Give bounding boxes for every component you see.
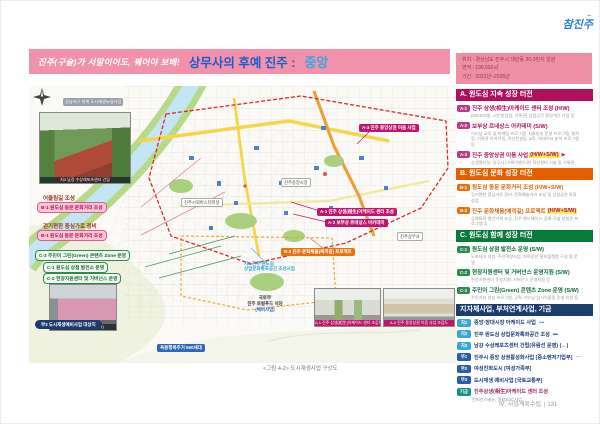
item-bu2-text: 여성친화도시 [여성가족부] — [474, 365, 531, 372]
leports-center-photo-caption: 지3 남강 수상레포츠센터 건립 — [40, 177, 130, 183]
item-ji2-text: 진주 원도심 상업문화특화공간 조성 — [474, 331, 550, 338]
item-c2-desc: 현장지원센터 운영지원, 거버넌스 운영지원 등 — [471, 277, 579, 283]
item-c3-desc: 주민기자 양성 프로그램, 공톡·가드닝·업사이클링 운영 지원 등 — [471, 295, 579, 301]
note-eoullim-path: 어울림길 조성 — [43, 194, 75, 202]
section-b-header: B. 원도심 문화 성장 터전 — [456, 168, 593, 180]
info-location: 위치 : 경상남도 진주시 대안동 30-3번지 일원 — [462, 56, 586, 64]
section-a-header: A. 원도심 지속 성장 터전 — [456, 89, 593, 101]
project-list-panel: A. 원도심 지속 성장 터전 A-1 진주 상생(相生)아케이드 센터 조성 … — [456, 89, 593, 406]
b2-map-badge: B-2 진주 문화채움(예끼길) 프로젝트 — [281, 248, 355, 256]
item-fund-text: 진주상생(相生)아케이드 센터 조성 — [474, 388, 548, 395]
info-period: 기간 : 2022년~2026년 — [462, 73, 586, 81]
gangnam-district-badge: 강남지구 연계 도시재생뉴딜사업 — [63, 98, 123, 106]
item-a2-desc: 이러닝 교육 및 마케팅 프로그램, 자율방송 운영 프로그램, 컬처링, 기록… — [471, 131, 579, 148]
item-ji2-badge: 지2 — [457, 330, 471, 338]
item-a1-badge: A-1 — [457, 105, 470, 112]
compass-rose-icon — [33, 88, 51, 106]
item-c1-desc: 노포테크 지원, 주민역량사업, 지역상인 홍보플랫폼 구성 및 운영 — [471, 254, 579, 265]
bu3-target-site-pill: 부3 도시재생예비사업 대상지 — [35, 320, 102, 329]
item-b1-desc: 걷기편한 중심가로 정비, 문화예술거리 조성 및 상설공연 특화상점 — [471, 192, 579, 203]
item-a2: A-2 보부상 르네상스 아카데미 (S/W) 이러닝 교육 및 마케팅 프로그… — [457, 122, 593, 148]
item-c2-title: 현장지원센터 및 거버넌스 운영지원 (S/W) — [472, 268, 570, 276]
item-ji3-badge: 지3 — [457, 342, 471, 350]
item-b1-title: 원도심 동문 문화거리 조성 (H/W+S/W) — [472, 183, 563, 191]
sangmusa-rendering: A-3 진주 중앙상권 이음 사업 조감도 — [383, 288, 455, 327]
item-a2-badge: A-2 — [457, 122, 470, 129]
item-a3: A-3 진주 중앙상권 이음 사업 (H/W+S/W) ▶ 상생멀티실, 상무사… — [457, 151, 593, 166]
item-a2-title: 보부상 르네상스 아카데미 (S/W) — [472, 122, 548, 130]
item-a1: A-1 진주 상생(相生)아케이드 센터 조성 (H/W) (MICE지원, 시… — [457, 104, 593, 119]
item-c1-title: 원도심 상점 발전소 운영 (S/W) — [472, 245, 544, 253]
item-ji1-badge: 지1 — [457, 319, 471, 327]
item-a3-desc: 상생멀티실, 상무사 (기록이벤트관) 혁신센터 시설 및 기록관 — [471, 160, 579, 166]
item-ji3: 지3 남강 수상레포츠센터 건립(유람선 운영) (←) — [457, 342, 593, 350]
sangmusa-rendering-caption: A-3 진주 중앙상권 이음 사업 조감도 — [384, 320, 454, 326]
item-ji2: 지2 진주 원도심 상업문화특화공간 조성 ▬ — [457, 330, 593, 338]
b1-callout-badge-1: B-1 원도심 동문 문화거리 조성 — [37, 202, 107, 213]
section-d-header: 지자체사업, 부처연계사업, 기금 — [456, 304, 593, 316]
item-bu1-badge: 부1 — [457, 353, 471, 361]
item-bu3-text: 도시재생 예비사업 [국토교통부] — [474, 377, 542, 384]
a3-map-badge: A-3 진주 중앙상권 이음 사업 — [359, 124, 419, 132]
item-c1: C-1 원도심 상점 발전소 운영 (S/W) 노포테크 지원, 주민역량사업,… — [457, 245, 593, 265]
item-bu3: 부3 도시재생 예비사업 [국토교통부] — [457, 376, 593, 384]
a1-map-badge: A-1 진주 상생(相生)아케이드 센터 조성 — [317, 208, 397, 216]
item-ji2-line-icon: ▬ — [553, 331, 558, 337]
leports-center-photo: 지3 남강 수상레포츠센터 건립 — [39, 112, 131, 184]
item-c3-title: 주민이 그린(Green) 콘텐츠 Zone 운영 (S/W) — [472, 286, 579, 294]
item-bu1: 부1 진주시 중앙 상권활성화사업 [중소벤처기업부] ╌╌ — [457, 353, 593, 361]
item-a3-arrow-icon: ▶ — [562, 152, 566, 158]
item-c3: C-3 주민이 그린(Green) 콘텐츠 Zone 운영 (S/W) 주민기자… — [457, 286, 593, 301]
item-b2-title: 진주 문화채움(예끼길) 프로젝트 — [472, 207, 546, 215]
page-title-highlight: 중앙 — [304, 52, 328, 71]
slogan-text: 진주(구슬)가 서말이어도, 꿰어야 보배! — [38, 56, 180, 68]
item-b2-badge: B-2 — [457, 207, 470, 214]
item-c2-badge: C-2 — [457, 269, 470, 276]
ji2-map-text: 지2 진주 원도심 상업문화특화공간 조성사업 — [244, 261, 295, 272]
item-a1-desc: (MICE지원, 시민창업샵, 기록관) 상업공간 환경개선 사업 등 — [471, 113, 579, 119]
localfood-line3: (예비사업) — [229, 307, 301, 313]
item-b1: B-1 원도심 동문 문화거리 조성 (H/W+S/W) 걷기편한 중심가로 정… — [457, 183, 593, 203]
section-c-header: C. 원도심 함께 성장 터전 — [456, 230, 593, 242]
item-bu2-badge: 부2 — [457, 365, 471, 373]
okbong-housing-badge: 옥봉행복주거 500세대 — [157, 344, 205, 352]
localfood-map-text: 국토부 진주 로컬푸드 식당 (예비사업) — [229, 295, 301, 313]
item-bu1-text: 진주시 중앙 상권활성화사업 [중소벤처기업부] — [474, 354, 572, 361]
title-band: 진주(구슬)가 서말이어도, 꿰어야 보배! 상무사의 후예 진주 : 중앙 — [29, 49, 450, 74]
item-ji1-text: 중앙·장대시장 아케이드 사업 — [474, 319, 536, 326]
item-b2-desc: 공예특화 청년가게 조성, 진주 핸드메이드·공예·구슬 실험존 프로그램 등 — [471, 216, 579, 227]
item-bu2: 부2 여성친화도시 [여성가족부] — [457, 365, 593, 373]
arcade-center-rendering: A-1 진주 상생(相生)아케이드 센터 조감도 — [314, 288, 381, 327]
page-title: 상무사의 후예 진주 : — [189, 52, 296, 71]
figure-caption: <그림 4-2> 도시재생사업 구상도 — [263, 364, 338, 372]
bus-terminal-label: 진주시외버스터미널 — [181, 198, 223, 207]
c1-callout-badge: C-1 원도심 상점 발전소 운영 — [43, 262, 108, 273]
item-b1-badge: B-1 — [457, 184, 470, 191]
item-ji1: 지1 중앙·장대시장 아케이드 사업 ⊶ — [457, 319, 593, 327]
jinju-city-logo: ~ 참진주 — [535, 13, 593, 39]
item-b2: B-2 진주 문화채움(예끼길) 프로젝트 (H/W+S/W) 공예특화 청년가… — [457, 207, 593, 227]
report-page: ~ 참진주 진주(구슬)가 서말이어도, 꿰어야 보배! 상무사의 후예 진주 … — [0, 0, 600, 424]
item-a3-highlight: (H/W+S/W) — [529, 152, 559, 158]
item-bu3-badge: 부3 — [457, 376, 471, 384]
item-c1-badge: C-1 — [457, 246, 470, 253]
arcade-center-rendering-caption: A-1 진주 상생(相生)아케이드 센터 조감도 — [315, 320, 380, 326]
c2-callout-badge: C-2 현장지원센터 및 거버넌스 운영 — [43, 273, 121, 284]
page-footer: Ⅳ. 사업계획수립 ∣ 131 — [499, 399, 557, 408]
item-c3-badge: C-3 — [457, 287, 470, 294]
a2-map-badge: A-2 보부상 르네상스 아카데미 — [325, 219, 388, 227]
item-ji1-link-icon: ⊶ — [539, 320, 544, 326]
item-a3-title: 진주 중앙상권 이음 사업 — [472, 151, 528, 159]
ji2-map-text-line2: 상업문화특화공간 조성사업 — [244, 266, 295, 271]
item-c2: C-2 현장지원센터 및 거버넌스 운영지원 (S/W) 현장지원센터 운영지원… — [457, 268, 593, 283]
project-info-box: 위치 : 경상남도 진주시 대안동 30-3번지 일원 면적 : 199,692… — [456, 53, 592, 84]
central-market-label: 진주중앙시장 — [281, 178, 311, 187]
info-area: 면적 : 199,692㎡ — [462, 64, 586, 72]
sangmusa-label: 진주상무사 — [397, 232, 423, 241]
item-b2-highlight: (H/W+S/W) — [547, 208, 577, 214]
item-bu1-dash-icon: ╌╌ — [575, 354, 581, 360]
b1-callout-badge-2: B-1 원도심 동문 문화거리 조성 — [37, 230, 107, 241]
master-plan-map: 강남지구 연계 도시재생뉴딜사업 지3 남강 수상레포츠센터 건립 어울림길 조… — [29, 86, 456, 363]
logo-text: 참진주 — [563, 19, 593, 31]
item-fund: 기금 진주상생(相生)아케이드 센터 조성 — [457, 388, 593, 396]
item-a1-title: 진주 상생(相生)아케이드 센터 조성 (H/W) — [472, 104, 569, 112]
c3-callout-badge: C-3 주민이 그린(Green) 콘텐츠 Zone 운영 — [35, 250, 130, 261]
item-ji3-text: 남강 수상레포츠센터 건립(유람선 운영) (←) — [474, 342, 568, 349]
note-walkable-street: 걷기편한 중심가로 정비 — [43, 222, 97, 230]
item-a3-badge: A-3 — [457, 151, 470, 158]
item-fund-badge: 기금 — [457, 388, 471, 396]
